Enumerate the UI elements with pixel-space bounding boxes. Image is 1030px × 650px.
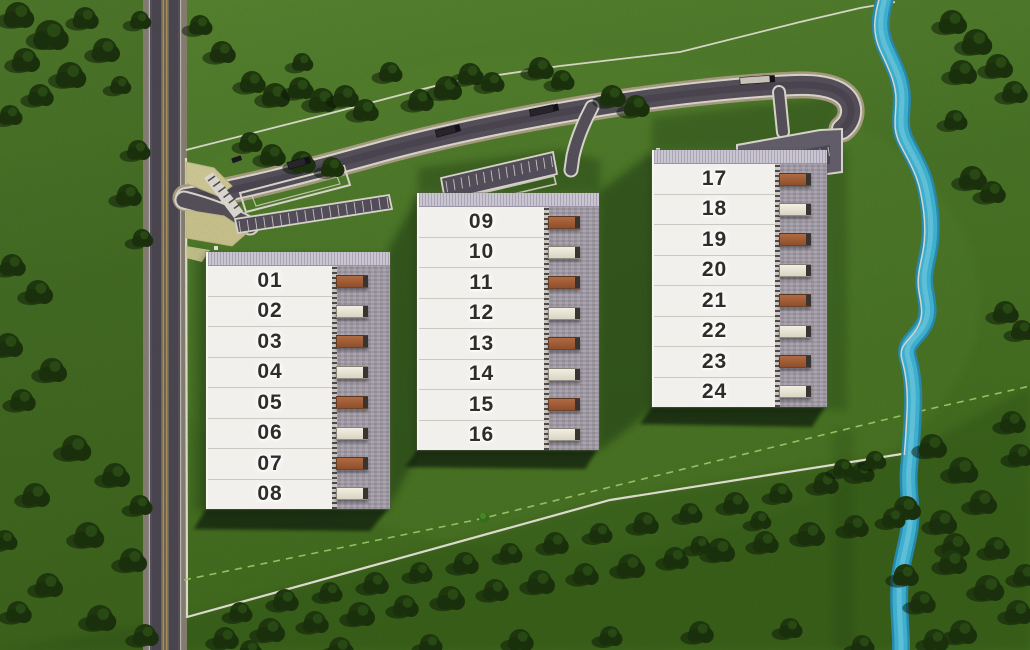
unit-row: 23 bbox=[654, 346, 775, 377]
unit-row: 19 bbox=[654, 224, 775, 255]
dock-bay bbox=[544, 329, 599, 359]
truck-icon bbox=[548, 428, 580, 441]
unit-row: 10 bbox=[419, 237, 544, 268]
dock-bay bbox=[775, 286, 827, 316]
dock-bay bbox=[544, 268, 599, 298]
building-roof-edge bbox=[208, 252, 390, 266]
unit-number: 20 bbox=[702, 258, 727, 282]
unit-row: 20 bbox=[654, 255, 775, 286]
unit-number: 11 bbox=[469, 271, 493, 295]
truck-icon bbox=[548, 246, 580, 259]
unit-row: 07 bbox=[208, 448, 332, 479]
dock-bay bbox=[775, 255, 827, 285]
truck-cab bbox=[806, 265, 811, 276]
truck-icon bbox=[336, 396, 368, 409]
truck-cab bbox=[806, 386, 811, 397]
unit-number: 15 bbox=[469, 393, 494, 417]
dock-bay bbox=[332, 418, 390, 448]
truck-icon bbox=[336, 335, 368, 348]
truck-icon bbox=[779, 385, 811, 398]
unit-number: 04 bbox=[257, 360, 282, 384]
unit-number: 17 bbox=[702, 167, 727, 191]
unit-row: 14 bbox=[419, 359, 544, 390]
truck-icon bbox=[336, 275, 368, 288]
unit-row: 15 bbox=[419, 389, 544, 420]
dock-bay bbox=[544, 420, 599, 450]
dock-bay bbox=[775, 346, 827, 376]
truck-cab bbox=[575, 277, 580, 288]
unit-rows: 1718192021222324 bbox=[654, 164, 775, 407]
unit-number: 01 bbox=[257, 269, 282, 293]
unit-rows: 0102030405060708 bbox=[208, 266, 332, 509]
dock-bay bbox=[775, 316, 827, 346]
truck-icon bbox=[779, 325, 811, 338]
building-1: 0102030405060708 bbox=[206, 252, 390, 509]
truck-icon bbox=[779, 294, 811, 307]
dock-bay bbox=[775, 225, 827, 255]
truck-icon bbox=[779, 203, 811, 216]
truck-icon bbox=[336, 427, 368, 440]
truck-cab bbox=[575, 247, 580, 258]
truck-icon bbox=[548, 337, 580, 350]
unit-row: 13 bbox=[419, 328, 544, 359]
dock-bay bbox=[332, 388, 390, 418]
unit-number: 14 bbox=[469, 362, 494, 386]
unit-number: 05 bbox=[257, 391, 282, 415]
truck-cab bbox=[575, 429, 580, 440]
unit-row: 09 bbox=[419, 207, 544, 237]
truck-icon bbox=[548, 368, 580, 381]
dock-bay bbox=[544, 207, 599, 237]
building-3: 1718192021222324 bbox=[652, 150, 827, 407]
truck-cab bbox=[806, 204, 811, 215]
truck-icon bbox=[779, 355, 811, 368]
truck-icon bbox=[779, 264, 811, 277]
unit-row: 01 bbox=[208, 266, 332, 296]
unit-number: 18 bbox=[702, 197, 727, 221]
unit-number: 22 bbox=[702, 319, 727, 343]
unit-number: 21 bbox=[702, 289, 727, 313]
truck-icon bbox=[336, 366, 368, 379]
dock-bay bbox=[332, 266, 390, 296]
building-roof-edge bbox=[419, 193, 599, 207]
unit-row: 21 bbox=[654, 285, 775, 316]
truck-icon bbox=[548, 398, 580, 411]
unit-row: 16 bbox=[419, 420, 544, 451]
dock-bay bbox=[775, 377, 827, 407]
unit-row: 17 bbox=[654, 164, 775, 194]
truck-cab bbox=[806, 234, 811, 245]
loading-dock-strip bbox=[775, 164, 827, 407]
dock-bay bbox=[332, 448, 390, 478]
building-roof-edge bbox=[654, 150, 827, 164]
unit-rows: 0910111213141516 bbox=[419, 207, 544, 450]
dock-bay bbox=[544, 237, 599, 267]
unit-row: 22 bbox=[654, 316, 775, 347]
unit-row: 02 bbox=[208, 296, 332, 327]
truck-cab bbox=[575, 217, 580, 228]
unit-row: 04 bbox=[208, 357, 332, 388]
dock-bay bbox=[775, 164, 827, 194]
unit-number: 19 bbox=[702, 228, 727, 252]
unit-row: 24 bbox=[654, 377, 775, 408]
unit-row: 12 bbox=[419, 298, 544, 329]
truck-cab bbox=[363, 336, 368, 347]
truck-cab bbox=[806, 174, 811, 185]
truck-cab bbox=[363, 306, 368, 317]
dock-bay bbox=[332, 479, 390, 509]
loading-dock-strip bbox=[544, 207, 599, 450]
building-2: 0910111213141516 bbox=[417, 193, 599, 450]
truck-icon bbox=[548, 276, 580, 289]
unit-number: 13 bbox=[469, 332, 494, 356]
truck-icon bbox=[336, 305, 368, 318]
dock-bay bbox=[332, 296, 390, 326]
unit-row: 08 bbox=[208, 479, 332, 510]
units-area: 1718192021222324 bbox=[654, 164, 827, 407]
unit-number: 10 bbox=[469, 240, 494, 264]
unit-number: 07 bbox=[257, 452, 282, 476]
dock-bay bbox=[544, 389, 599, 419]
truck-cab bbox=[363, 458, 368, 469]
unit-number: 08 bbox=[257, 482, 282, 506]
dock-bay bbox=[775, 194, 827, 224]
unit-row: 18 bbox=[654, 194, 775, 225]
units-area: 0102030405060708 bbox=[208, 266, 390, 509]
truck-icon bbox=[548, 216, 580, 229]
truck-cab bbox=[806, 326, 811, 337]
truck-cab bbox=[363, 428, 368, 439]
dock-bay bbox=[332, 327, 390, 357]
unit-row: 11 bbox=[419, 267, 544, 298]
truck-cab bbox=[363, 276, 368, 287]
dock-bay bbox=[544, 359, 599, 389]
truck-cab bbox=[806, 295, 811, 306]
unit-number: 23 bbox=[702, 350, 727, 374]
loading-dock-strip bbox=[332, 266, 390, 509]
truck-cab bbox=[363, 397, 368, 408]
truck-cab bbox=[575, 399, 580, 410]
truck-cab bbox=[363, 367, 368, 378]
truck-cab bbox=[575, 338, 580, 349]
unit-number: 12 bbox=[469, 301, 494, 325]
unit-row: 06 bbox=[208, 418, 332, 449]
truck-cab bbox=[575, 308, 580, 319]
unit-row: 03 bbox=[208, 326, 332, 357]
unit-number: 03 bbox=[257, 330, 282, 354]
truck-icon bbox=[336, 487, 368, 500]
dock-bay bbox=[544, 298, 599, 328]
unit-number: 09 bbox=[469, 210, 494, 234]
site-plan: 0102030405060708091011121314151617181920… bbox=[0, 0, 1030, 650]
truck-cab bbox=[363, 488, 368, 499]
units-area: 0910111213141516 bbox=[419, 207, 599, 450]
unit-number: 24 bbox=[702, 380, 727, 404]
unit-row: 05 bbox=[208, 387, 332, 418]
truck-cab bbox=[575, 369, 580, 380]
truck-icon bbox=[548, 307, 580, 320]
truck-icon bbox=[779, 173, 811, 186]
truck-cab bbox=[806, 356, 811, 367]
truck-icon bbox=[779, 233, 811, 246]
dock-bay bbox=[332, 357, 390, 387]
truck-icon bbox=[336, 457, 368, 470]
unit-number: 06 bbox=[257, 421, 282, 445]
unit-number: 16 bbox=[469, 423, 494, 447]
unit-number: 02 bbox=[257, 299, 282, 323]
